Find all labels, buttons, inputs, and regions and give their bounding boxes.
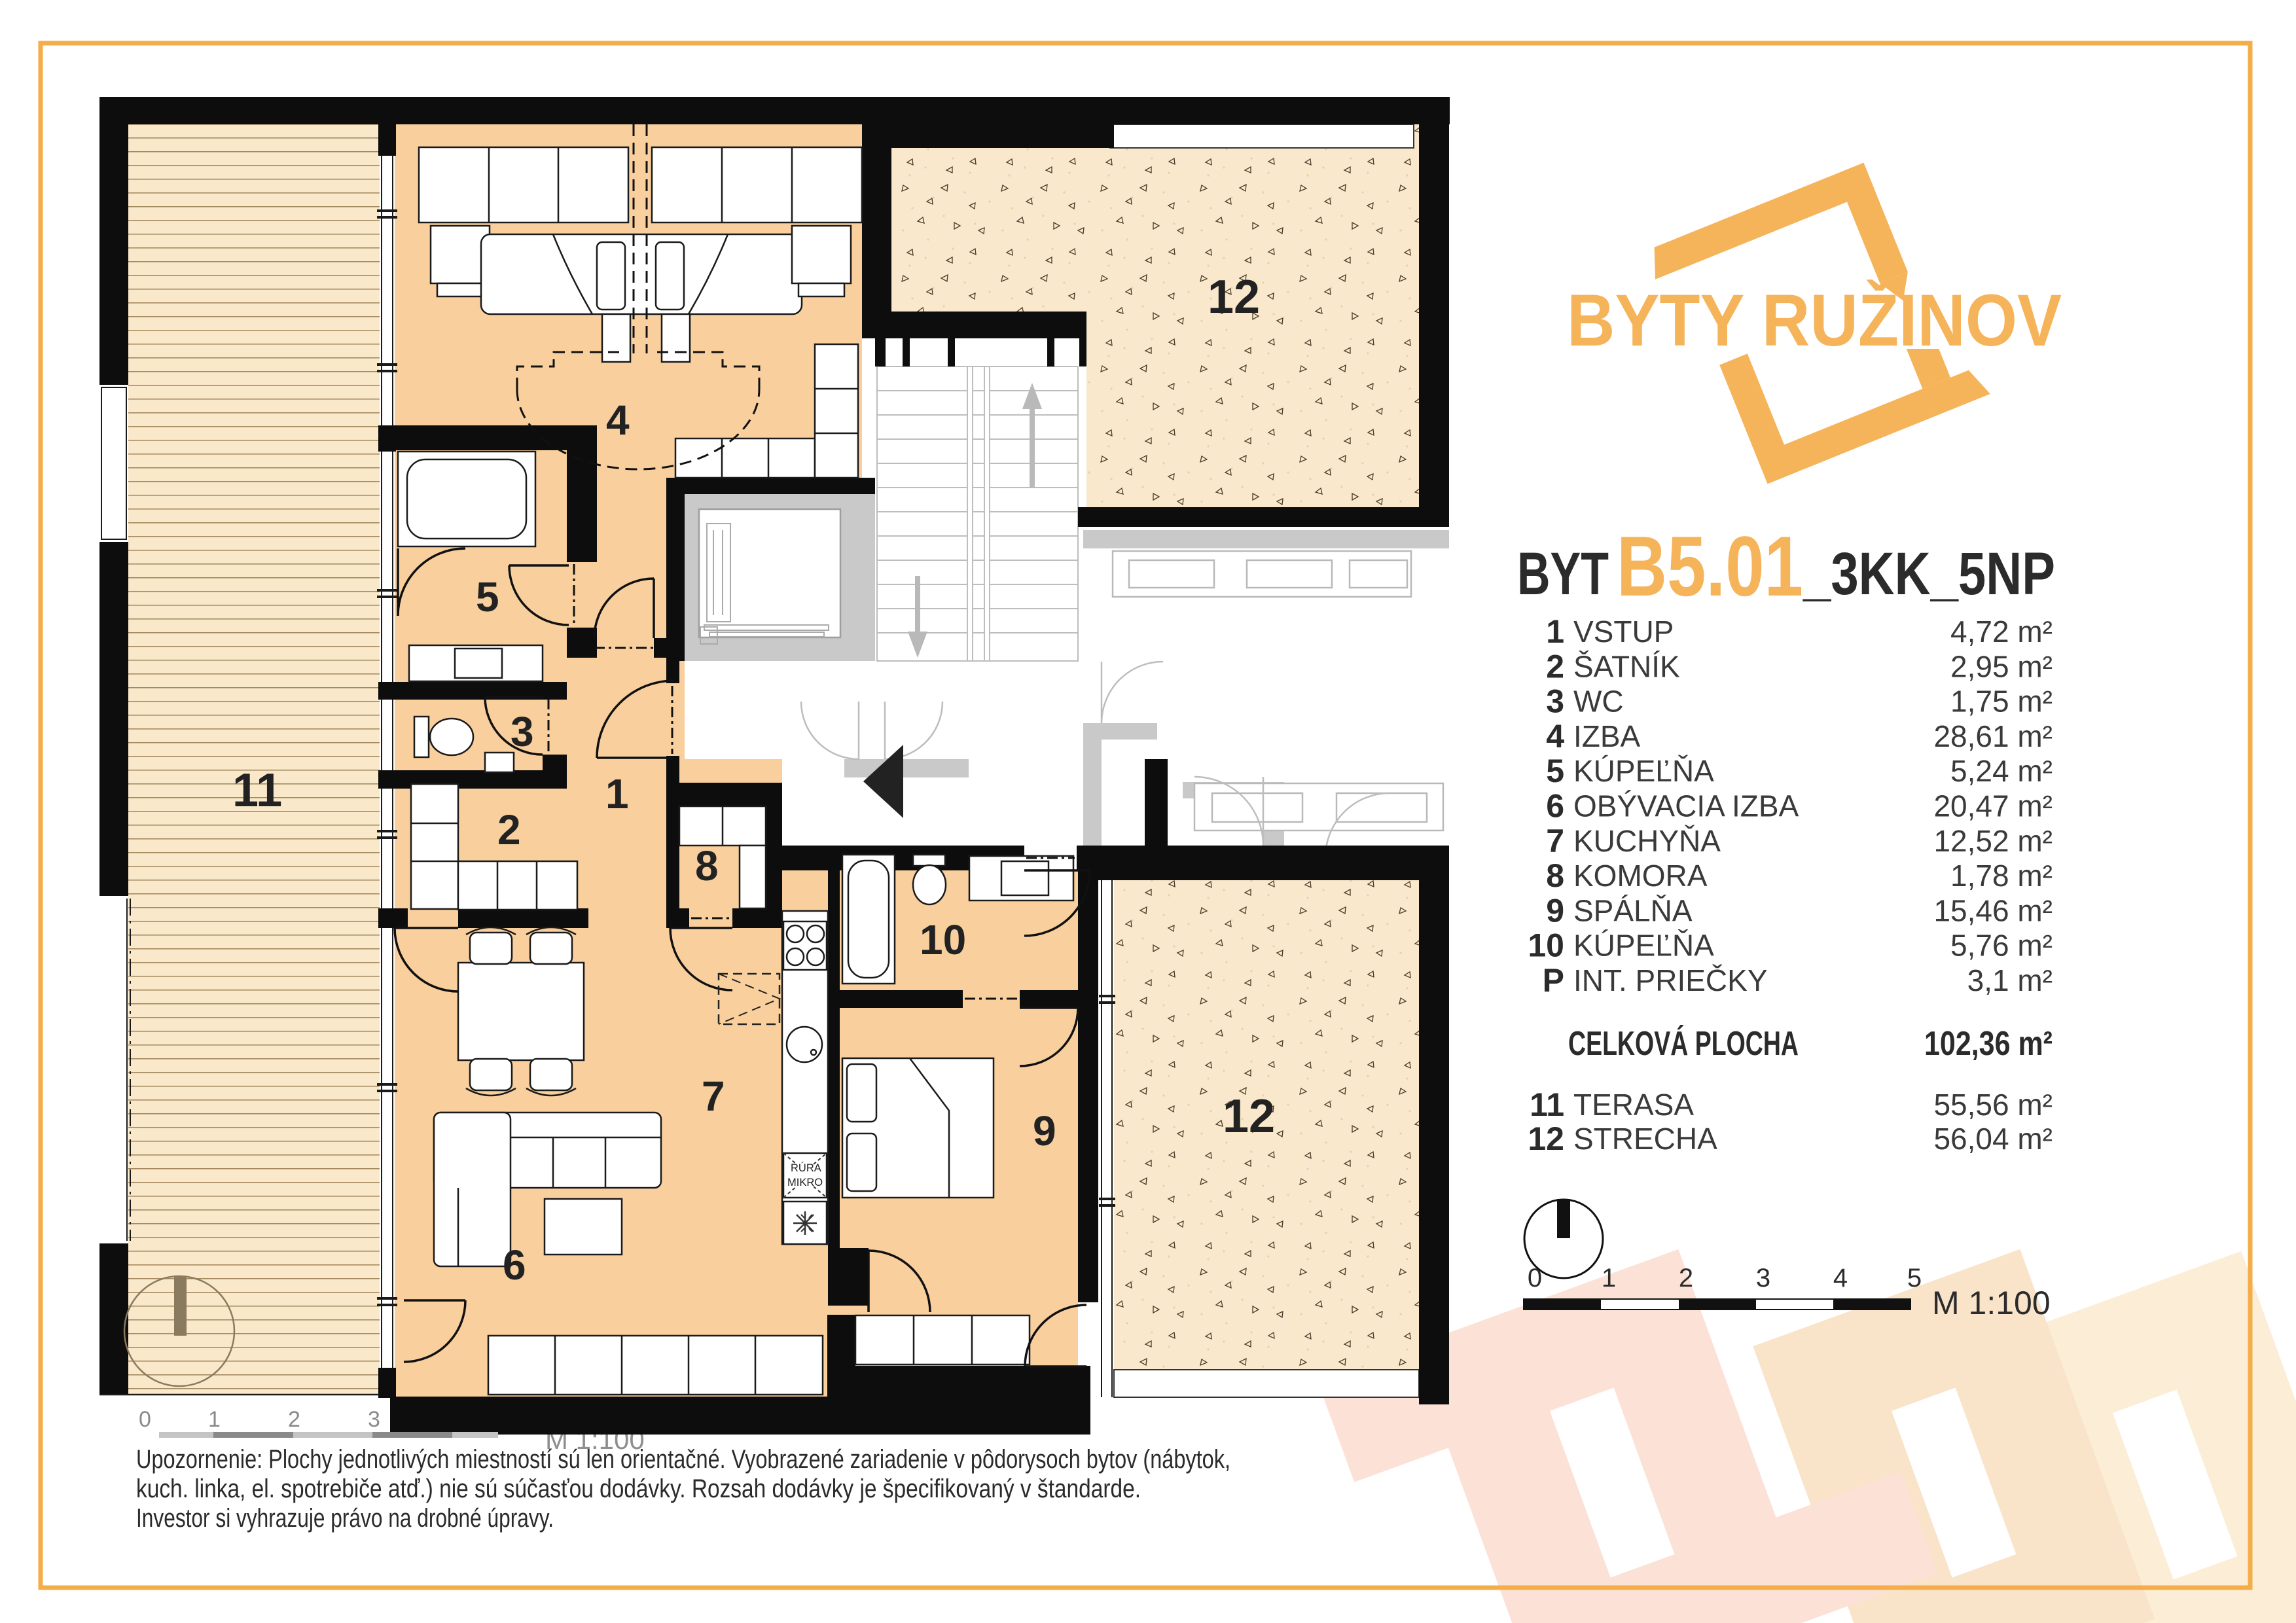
svg-text:8: 8 xyxy=(695,842,719,889)
svg-text:28,61 m²: 28,61 m² xyxy=(1933,719,2053,753)
svg-text:1,78 m²: 1,78 m² xyxy=(1950,859,2053,893)
svg-text:11: 11 xyxy=(232,764,282,817)
svg-text:12: 12 xyxy=(1208,271,1260,323)
svg-text:2: 2 xyxy=(288,1407,300,1432)
svg-text:55,56 m²: 55,56 m² xyxy=(1933,1088,2053,1122)
svg-text:9: 9 xyxy=(1033,1107,1056,1154)
svg-text:7: 7 xyxy=(702,1073,725,1120)
svg-text:M 1:100: M 1:100 xyxy=(1932,1285,2051,1321)
svg-text:4: 4 xyxy=(1833,1264,1848,1293)
svg-text:KÚPEĽŇA: KÚPEĽŇA xyxy=(1573,929,1714,963)
svg-text:3: 3 xyxy=(511,708,534,755)
svg-text:CELKOVÁ PLOCHA: CELKOVÁ PLOCHA xyxy=(1568,1025,1799,1063)
svg-text:0: 0 xyxy=(1528,1264,1542,1293)
svg-text:SPÁLŇA: SPÁLŇA xyxy=(1573,893,1693,927)
svg-text:Upozornenie: Plochy jednotlivý: Upozornenie: Plochy jednotlivých miestno… xyxy=(136,1445,1230,1474)
svg-text:1: 1 xyxy=(208,1407,221,1432)
svg-text:BYT: BYT xyxy=(1517,541,1609,607)
svg-text:20,47 m²: 20,47 m² xyxy=(1933,789,2053,823)
svg-text:OBÝVACIA IZBA: OBÝVACIA IZBA xyxy=(1573,789,1799,823)
svg-text:4: 4 xyxy=(1546,718,1564,755)
svg-text:5,24 m²: 5,24 m² xyxy=(1950,754,2053,788)
svg-text:56,04 m²: 56,04 m² xyxy=(1933,1122,2053,1156)
svg-text:2: 2 xyxy=(497,806,521,853)
svg-text:10: 10 xyxy=(1528,927,1564,964)
svg-text:4,72 m²: 4,72 m² xyxy=(1950,615,2053,649)
svg-text:B5.01: B5.01 xyxy=(1617,518,1803,614)
svg-text:IZBA: IZBA xyxy=(1573,719,1641,753)
svg-text:TERASA: TERASA xyxy=(1573,1088,1694,1122)
svg-text:KOMORA: KOMORA xyxy=(1573,859,1708,893)
svg-text:6: 6 xyxy=(503,1241,526,1289)
svg-text:2: 2 xyxy=(1546,648,1564,685)
svg-text:1: 1 xyxy=(1602,1264,1616,1293)
svg-text:5: 5 xyxy=(1907,1264,1922,1293)
svg-text:5,76 m²: 5,76 m² xyxy=(1950,929,2053,963)
svg-text:ŠATNÍK: ŠATNÍK xyxy=(1573,649,1680,683)
svg-text:1: 1 xyxy=(605,770,629,817)
svg-text:BYTY RUŽINOV: BYTY RUŽINOV xyxy=(1567,279,2062,361)
svg-text:7: 7 xyxy=(1546,823,1564,859)
svg-text:12,52 m²: 12,52 m² xyxy=(1933,824,2053,858)
svg-text:5: 5 xyxy=(476,573,499,620)
svg-text:3: 3 xyxy=(1756,1264,1770,1293)
svg-text:12: 12 xyxy=(1223,1090,1275,1143)
svg-text:11: 11 xyxy=(1530,1086,1564,1123)
svg-text:5: 5 xyxy=(1546,753,1564,789)
svg-text:10: 10 xyxy=(920,916,966,963)
svg-text:102,36 m²: 102,36 m² xyxy=(1924,1025,2053,1063)
svg-text:KUCHYŇA: KUCHYŇA xyxy=(1573,824,1721,858)
svg-text:2,95 m²: 2,95 m² xyxy=(1950,649,2053,683)
svg-text:8: 8 xyxy=(1546,857,1564,894)
svg-text:MIKRO: MIKRO xyxy=(787,1177,823,1188)
svg-text:6: 6 xyxy=(1546,788,1564,825)
svg-text:15,46 m²: 15,46 m² xyxy=(1933,893,2053,927)
svg-text:_3KK_5NP: _3KK_5NP xyxy=(1803,541,2055,607)
svg-text:0: 0 xyxy=(139,1407,151,1432)
svg-text:VSTUP: VSTUP xyxy=(1573,615,1674,649)
svg-text:KÚPEĽŇA: KÚPEĽŇA xyxy=(1573,754,1714,788)
svg-text:2: 2 xyxy=(1679,1264,1693,1293)
svg-text:RÚRA: RÚRA xyxy=(791,1162,821,1174)
svg-text:3,1 m²: 3,1 m² xyxy=(1967,963,2053,997)
svg-text:1,75 m²: 1,75 m² xyxy=(1950,685,2053,719)
svg-text:STRECHA: STRECHA xyxy=(1573,1122,1717,1156)
svg-text:3: 3 xyxy=(368,1407,380,1432)
svg-text:kuch. linka, el. spotrebiče at: kuch. linka, el. spotrebiče atď.) nie sú… xyxy=(136,1474,1141,1503)
svg-text:12: 12 xyxy=(1528,1120,1564,1157)
svg-text:INT. PRIEČKY: INT. PRIEČKY xyxy=(1573,963,1768,997)
svg-text:1: 1 xyxy=(1546,613,1564,650)
svg-text:WC: WC xyxy=(1573,685,1624,719)
svg-text:Investor si vyhrazuje právo na: Investor si vyhrazuje právo na drobné úp… xyxy=(136,1504,554,1533)
svg-text:9: 9 xyxy=(1546,892,1564,929)
svg-text:4: 4 xyxy=(606,397,630,444)
svg-text:3: 3 xyxy=(1546,683,1564,720)
svg-text:P: P xyxy=(1543,962,1564,999)
